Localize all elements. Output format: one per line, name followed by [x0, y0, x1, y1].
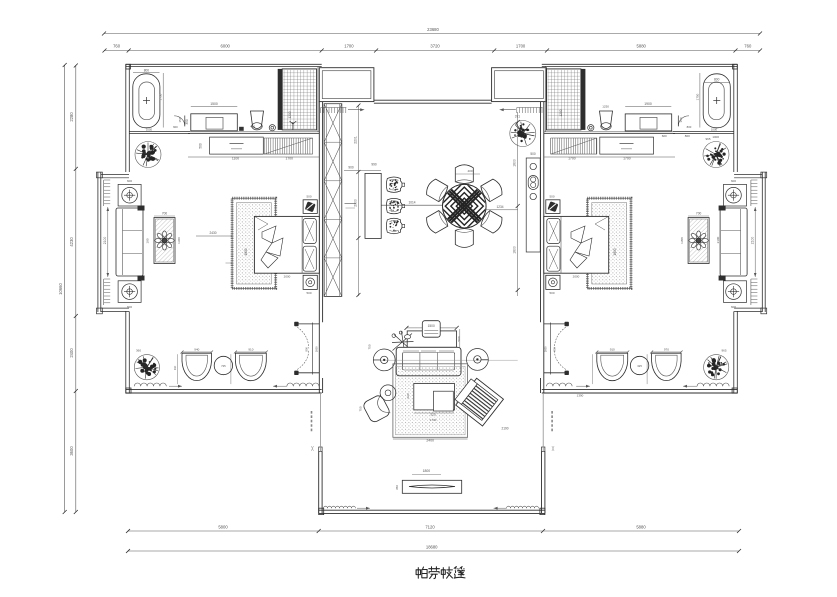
svg-text:23680: 23680: [427, 27, 439, 32]
svg-text:800: 800: [553, 347, 557, 352]
svg-text:760: 760: [113, 44, 121, 49]
svg-text:350: 350: [395, 485, 399, 490]
svg-text:700: 700: [696, 212, 702, 216]
svg-text:400: 400: [467, 169, 472, 173]
svg-text:150: 150: [178, 117, 182, 122]
svg-text:800: 800: [305, 347, 309, 352]
svg-text:1000: 1000: [711, 128, 718, 132]
svg-text:600: 600: [662, 134, 667, 138]
svg-text:2000: 2000: [284, 275, 291, 279]
svg-text:18680: 18680: [426, 545, 438, 550]
svg-text:500: 500: [549, 195, 554, 199]
svg-text:750: 750: [359, 406, 363, 411]
svg-text:500: 500: [530, 152, 536, 156]
svg-text:1000: 1000: [712, 135, 719, 139]
svg-text:5880: 5880: [636, 525, 646, 530]
svg-text:2430: 2430: [209, 231, 216, 235]
svg-text:1234: 1234: [496, 205, 503, 209]
svg-text:2100: 2100: [716, 236, 720, 243]
svg-text:1390: 1390: [577, 394, 584, 398]
svg-text:1750: 1750: [159, 93, 163, 100]
svg-text:150: 150: [679, 117, 683, 122]
svg-text:3720: 3720: [430, 44, 440, 49]
svg-text:6000: 6000: [221, 44, 231, 49]
svg-text:1600: 1600: [512, 159, 516, 167]
svg-text:350: 350: [185, 119, 189, 125]
svg-text:965: 965: [721, 349, 726, 353]
svg-text:600: 600: [127, 305, 132, 309]
svg-text:800: 800: [714, 78, 720, 82]
svg-text:5800: 5800: [218, 525, 228, 530]
svg-text:1800: 1800: [423, 469, 431, 473]
svg-text:910: 910: [610, 348, 615, 352]
svg-text:1050: 1050: [146, 128, 153, 132]
svg-text:500: 500: [199, 143, 203, 149]
svg-text:2100: 2100: [751, 237, 755, 245]
svg-text:1600: 1600: [315, 346, 319, 352]
svg-text:110: 110: [173, 365, 177, 370]
svg-text:900: 900: [348, 166, 354, 170]
svg-text:1360: 1360: [177, 237, 181, 244]
svg-text:760: 760: [744, 44, 752, 49]
svg-text:1700: 1700: [344, 44, 354, 49]
svg-text:10660: 10660: [58, 283, 63, 295]
svg-text:7120: 7120: [425, 525, 435, 530]
svg-text:450: 450: [250, 124, 255, 128]
svg-text:990: 990: [371, 163, 377, 167]
svg-text:965: 965: [705, 137, 710, 141]
svg-text:1750: 1750: [695, 93, 699, 100]
svg-text:1800: 1800: [244, 248, 248, 255]
svg-text:190: 190: [146, 238, 150, 243]
svg-text:1200: 1200: [288, 111, 292, 118]
svg-text:1014: 1014: [408, 200, 415, 204]
svg-text:5880: 5880: [637, 44, 647, 49]
svg-text:500: 500: [457, 336, 461, 341]
svg-text:2201: 2201: [353, 136, 357, 144]
svg-text:1250: 1250: [602, 105, 609, 109]
svg-text:3600: 3600: [69, 446, 74, 456]
svg-text:1700: 1700: [516, 44, 526, 49]
svg-text:800: 800: [144, 69, 150, 73]
svg-text:2190: 2190: [501, 427, 508, 431]
svg-text:2000: 2000: [573, 275, 580, 279]
svg-text:1358: 1358: [680, 237, 684, 244]
svg-text:500: 500: [306, 291, 311, 295]
svg-text:1500: 1500: [210, 102, 218, 106]
svg-text:750: 750: [368, 344, 372, 349]
svg-text:500: 500: [549, 291, 554, 295]
svg-text:4230: 4230: [69, 237, 74, 247]
svg-text:1900: 1900: [644, 102, 652, 106]
svg-text:2100: 2100: [103, 237, 107, 245]
svg-text:1500: 1500: [428, 324, 435, 328]
svg-text:940: 940: [194, 348, 199, 352]
svg-text:725: 725: [221, 364, 226, 368]
svg-text:970: 970: [664, 348, 669, 352]
svg-text:600: 600: [731, 305, 736, 309]
svg-text:2000: 2000: [353, 199, 357, 207]
svg-text:600: 600: [173, 125, 178, 129]
svg-text:500: 500: [306, 195, 311, 199]
svg-text:700: 700: [162, 212, 168, 216]
svg-text:600: 600: [731, 179, 736, 183]
svg-text:620: 620: [406, 393, 410, 398]
svg-text:1600: 1600: [512, 246, 516, 254]
svg-text:360: 360: [136, 349, 141, 353]
svg-text:800: 800: [687, 125, 692, 129]
svg-text:2280: 2280: [69, 112, 74, 122]
svg-text:2400: 2400: [69, 348, 74, 358]
svg-text:325: 325: [637, 364, 642, 368]
svg-text:1730: 1730: [430, 418, 437, 422]
svg-text:600: 600: [127, 179, 132, 183]
svg-text:910: 910: [248, 348, 253, 352]
svg-text:1200: 1200: [559, 109, 563, 116]
svg-text:1600: 1600: [544, 346, 548, 352]
svg-text:1800: 1800: [613, 248, 617, 255]
svg-text:800: 800: [685, 134, 690, 138]
